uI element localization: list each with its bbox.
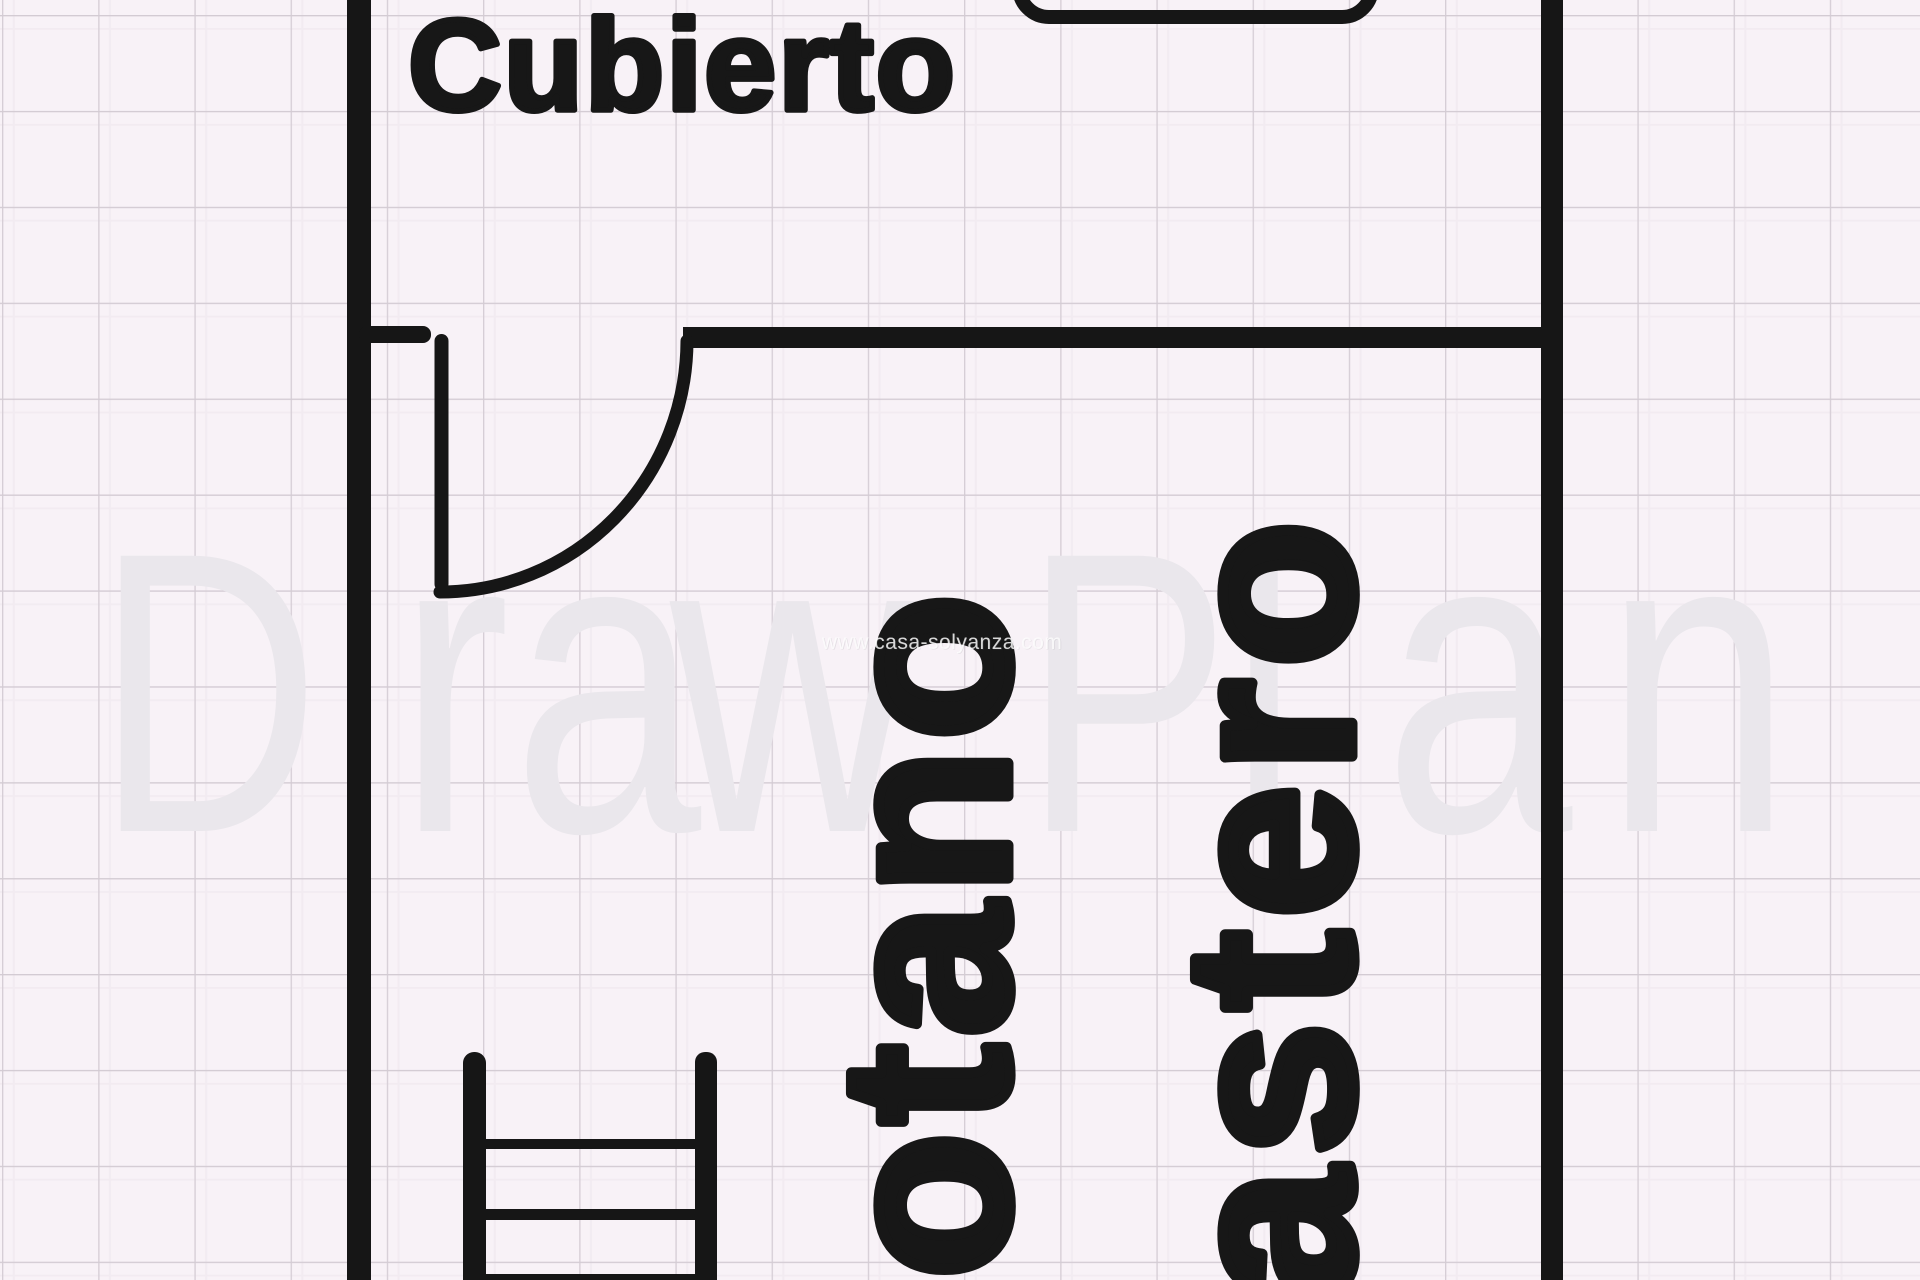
- svg-text:Cubierto: Cubierto: [408, 0, 957, 138]
- svg-text:Trastero: Trastero: [1135, 509, 1403, 1280]
- svg-text:Sotano: Sotano: [791, 586, 1059, 1280]
- svg-text:www.casa-solyanza.com: www.casa-solyanza.com: [821, 631, 1062, 654]
- svg-text:n: n: [1604, 437, 1793, 923]
- svg-text:D: D: [95, 470, 320, 917]
- svg-text:r: r: [397, 437, 510, 923]
